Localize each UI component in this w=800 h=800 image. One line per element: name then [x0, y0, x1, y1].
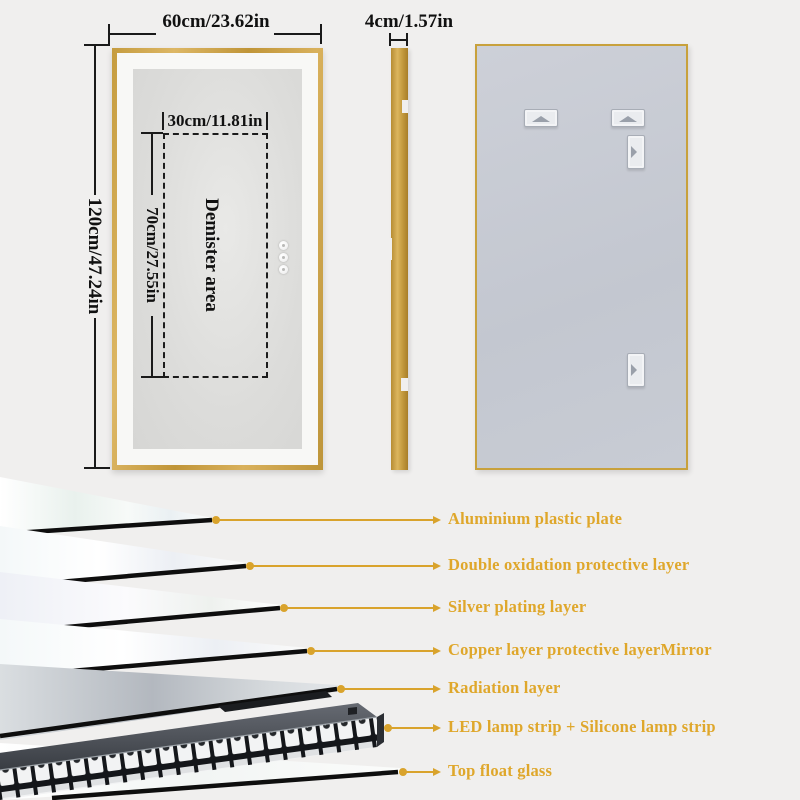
layer-label-copper: Copper layer protective layerMirror: [448, 640, 712, 660]
layer-label-radiation: Radiation layer: [448, 678, 561, 698]
mirror-thickness-dimension-label: 4cm/1.57in: [345, 11, 473, 33]
dimension-line: [94, 318, 96, 468]
dimension-tick: [84, 467, 110, 469]
layer-label-oxidation: Double oxidation protective layer: [448, 555, 689, 575]
product-spec-infographic: 60cm/23.62in 120cm/47.24in Demister area…: [0, 0, 800, 800]
mirror-width-dimension-label: 60cm/23.62in: [152, 11, 280, 33]
layer-sheet-aluminium: [0, 477, 213, 537]
layer-edge: [0, 566, 246, 587]
dimension-tick: [162, 112, 164, 130]
mirror-height-dimension-label: 120cm/47.24in: [85, 196, 105, 316]
mount-bracket-icon: [627, 353, 645, 387]
layer-edge: [0, 608, 280, 633]
demister-width-dimension-label: 30cm/11.81in: [160, 111, 270, 131]
callout-line: [249, 565, 438, 567]
callout-line: [340, 688, 438, 690]
mount-bracket-icon: [627, 135, 645, 169]
side-bracket-notch: [401, 378, 408, 391]
demister-area-label: Demister area: [200, 195, 222, 315]
mirror-back-panel: [475, 44, 688, 470]
layer-label-float-glass: Top float glass: [448, 761, 552, 781]
layer-edge: [0, 520, 212, 534]
dimension-line: [274, 33, 320, 35]
callout-line: [283, 607, 438, 609]
side-bracket-notch: [402, 100, 408, 113]
layer-sheet-oxidation: [0, 526, 247, 590]
dimension-line: [151, 316, 153, 377]
dimension-tick: [266, 112, 268, 130]
touch-sensor-icon: [279, 265, 288, 274]
led-lamp-strip: [0, 691, 384, 800]
layer-sheet-silver: [0, 572, 281, 636]
dimension-line: [94, 46, 96, 195]
dimension-line: [110, 33, 156, 35]
touch-sensor-icon: [279, 253, 288, 262]
dimension-line: [151, 134, 153, 195]
layer-edge: [52, 772, 398, 798]
side-bracket-notch: [388, 238, 392, 260]
layer-label-aluminium: Aluminium plastic plate: [448, 509, 622, 529]
layer-sheet-radiation: [0, 664, 338, 740]
layer-edge: [0, 651, 307, 677]
layer-label-silver: Silver plating layer: [448, 597, 586, 617]
layer-label-led-strip: LED lamp strip + Silicone lamp strip: [448, 717, 716, 737]
callout-line: [402, 771, 438, 773]
dimension-tick: [84, 44, 110, 46]
demister-height-dimension-label: 70cm/27.55in: [142, 195, 162, 315]
mount-bracket-icon: [524, 109, 558, 127]
mount-bracket-icon: [611, 109, 645, 127]
layer-sheet-copper: [0, 619, 308, 680]
callout-line: [387, 727, 438, 729]
layer-edge: [0, 689, 337, 736]
dimension-tick: [320, 24, 322, 44]
touch-sensor-icon: [279, 241, 288, 250]
layer-sheet-float-glass: [0, 743, 400, 800]
callout-line: [215, 519, 438, 521]
dimension-line: [389, 39, 408, 41]
callout-line: [310, 650, 438, 652]
